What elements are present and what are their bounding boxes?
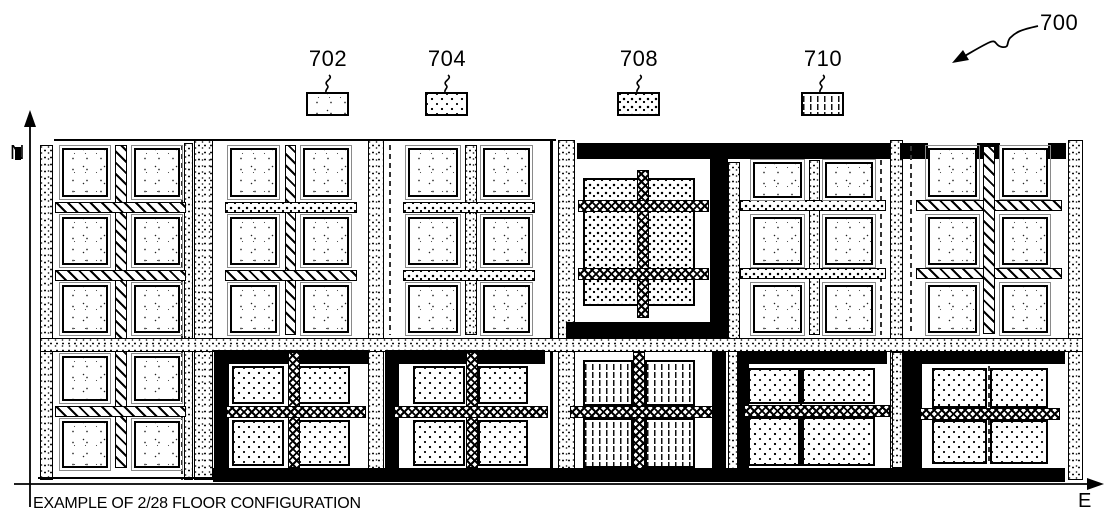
strip-a-b	[194, 140, 213, 480]
core-tile	[483, 217, 530, 265]
horizontal-channel-e1	[740, 200, 886, 211]
core-tile	[1002, 285, 1048, 333]
f-north-bar-3	[1048, 143, 1066, 159]
vertical-channel-e	[809, 160, 820, 335]
divider-a-east	[181, 145, 183, 480]
dense-tile	[748, 417, 800, 466]
dense-tile	[802, 417, 875, 466]
frame-d-east	[710, 159, 728, 335]
tile-divider-e	[800, 368, 802, 466]
legend-ref-704: 704	[412, 46, 482, 72]
core-tile	[62, 148, 108, 197]
divider-e-east	[880, 160, 882, 335]
vertical-channel-c	[465, 145, 477, 335]
dense-tile	[298, 420, 350, 466]
dense-tile	[478, 366, 528, 404]
core-tile	[483, 148, 530, 197]
dense-tile	[990, 368, 1048, 408]
north-axis-label: N	[10, 142, 24, 165]
horizontal-channel-a3	[55, 406, 186, 417]
core-tile	[303, 217, 349, 265]
core-tile	[134, 421, 180, 468]
core-tile	[825, 217, 873, 265]
legend-swatch-710	[801, 92, 844, 116]
core-tile	[928, 285, 977, 333]
figure-ref-leader-line	[963, 26, 1038, 57]
dense-tile	[232, 366, 284, 404]
f-north-bar-1	[900, 143, 928, 159]
dash-tile	[583, 418, 633, 468]
frame-e2-north	[737, 352, 887, 364]
crosshatch-channel-d-v	[637, 170, 649, 318]
crosshatch-channel-f2-h	[920, 408, 1060, 420]
dash-tile	[645, 418, 695, 468]
core-tile	[753, 285, 802, 333]
vertical-channel-a	[115, 145, 127, 468]
divider-f-west	[910, 146, 912, 334]
core-tile	[1002, 148, 1048, 197]
dense-tile	[748, 368, 800, 404]
legend-ref-708: 708	[604, 46, 674, 72]
core-tile	[825, 285, 873, 333]
horizontal-channel-b2	[225, 270, 357, 281]
edge-strip-east	[1068, 140, 1083, 480]
horizontal-channel-a2	[55, 270, 186, 281]
dense-tile	[932, 368, 987, 408]
east-axis-arrow-icon	[1087, 478, 1104, 490]
crosshatch-channel-d-h1	[578, 200, 709, 212]
horizontal-channel-a1	[55, 202, 186, 213]
figure-ref-arrow-icon	[952, 50, 969, 63]
core-tile	[134, 285, 180, 333]
figure-caption: EXAMPLE OF 2/28 FLOOR CONFIGURATION	[33, 495, 361, 513]
core-tile	[408, 148, 458, 197]
core-tile	[230, 148, 277, 197]
core-tile	[62, 421, 108, 468]
dense-tile	[932, 420, 987, 464]
edge-strip-west	[40, 145, 53, 480]
core-tile	[1002, 217, 1048, 265]
core-tile	[230, 217, 277, 265]
core-tile	[753, 217, 802, 265]
horizontal-channel-c1	[403, 202, 535, 213]
dense-tile	[413, 366, 465, 404]
dense-tile	[802, 368, 875, 404]
horizontal-channel-e2	[740, 268, 886, 279]
core-tile	[303, 285, 349, 333]
dash-tile	[645, 360, 695, 406]
crosshatch-channel-d2-h	[570, 406, 718, 418]
top-boundary-line	[54, 139, 556, 141]
core-tile	[62, 285, 108, 333]
patent-floorplan-figure: 702 704 708 710 700 N E EXAMPLE OF 2/28 …	[0, 0, 1118, 522]
east-axis-label: E	[1078, 490, 1091, 513]
legend-swatch-708	[617, 92, 660, 116]
core-tile	[408, 285, 458, 333]
horizontal-channel-b1	[225, 202, 357, 213]
core-tile	[134, 356, 180, 401]
frame-d-south	[566, 322, 740, 338]
core-tile	[753, 162, 802, 198]
core-tile	[928, 217, 977, 265]
horizontal-channel-c2	[403, 270, 535, 281]
core-tile	[62, 356, 108, 401]
core-tile	[825, 162, 873, 198]
legend-ref-702: 702	[293, 46, 363, 72]
strip-e2-east	[892, 352, 903, 468]
dense-tile	[478, 420, 528, 466]
frame-d2-east	[712, 352, 726, 468]
dash-tile	[583, 360, 633, 406]
core-tile	[134, 217, 180, 265]
dense-tile	[298, 366, 350, 404]
strip-c-d	[558, 140, 575, 480]
crosshatch-channel-e2-h	[744, 405, 890, 417]
bottom-boundary-line	[38, 477, 212, 479]
edge-strip-a-east	[184, 143, 193, 480]
dense-tile	[990, 420, 1048, 464]
legend-swatch-704	[425, 92, 468, 116]
legend-ref-710: 710	[788, 46, 858, 72]
figure-ref-number: 700	[1040, 10, 1078, 36]
south-power-bar	[213, 468, 1065, 482]
crosshatch-channel-d-h2	[578, 268, 709, 280]
vertical-channel-f	[983, 146, 995, 334]
core-tile	[230, 285, 277, 333]
dense-tile	[232, 420, 284, 466]
core-tile	[483, 285, 530, 333]
core-tile	[62, 217, 108, 265]
strip-b-c	[368, 140, 384, 480]
dense-tile	[413, 420, 465, 466]
frame-c2-north	[385, 350, 545, 364]
boundary-c-d	[550, 140, 553, 480]
core-tile	[928, 148, 977, 197]
core-tile	[408, 217, 458, 265]
crosshatch-channel-c2-h	[394, 406, 548, 418]
legend-swatch-702	[306, 92, 349, 116]
divider-c-west	[389, 145, 391, 335]
frame-f2-north	[903, 352, 1065, 364]
core-tile	[303, 148, 349, 197]
legend-leader-lines	[326, 75, 824, 92]
north-power-bar	[577, 143, 903, 159]
main-horizontal-channel	[40, 338, 1083, 352]
crosshatch-channel-b2-h	[226, 406, 366, 418]
core-tile	[134, 148, 180, 197]
north-axis-arrow-icon	[24, 110, 36, 127]
vertical-channel-b	[285, 145, 296, 335]
